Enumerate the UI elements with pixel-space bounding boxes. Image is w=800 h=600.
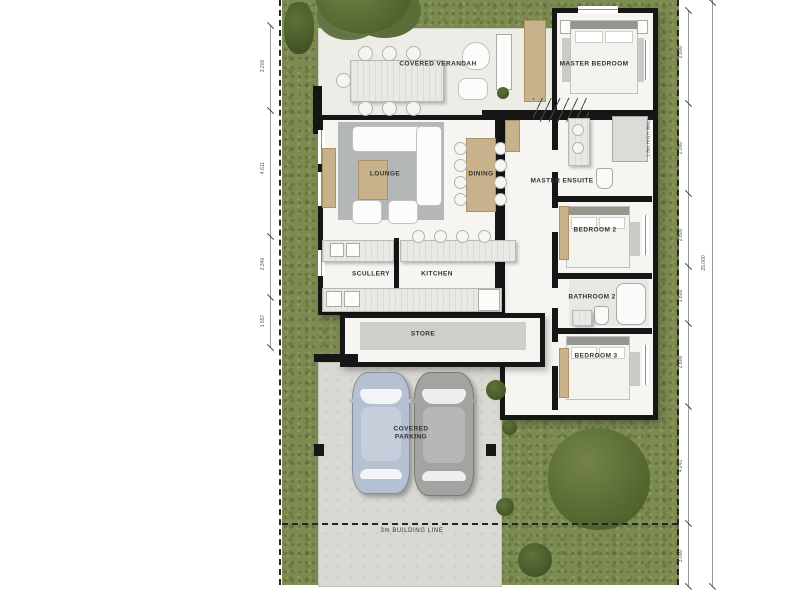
room-label-kitchen: KITCHEN xyxy=(421,271,453,278)
verandah-shelf xyxy=(496,34,512,90)
basin xyxy=(572,124,584,136)
car-windshield xyxy=(422,389,466,404)
dimension-label: 3.000 xyxy=(678,550,684,563)
dining-chair xyxy=(494,159,507,172)
outdoor-chair xyxy=(406,46,421,61)
room-label-bedroom-2: BEDROOM 2 xyxy=(574,227,617,234)
dining-chair xyxy=(494,193,507,206)
floor-plan-sheet: COVERED VERANDAH MASTER BEDROOM MASTER E… xyxy=(0,0,800,600)
bed-headboard xyxy=(567,337,629,345)
dimension-label: 3.200 xyxy=(260,60,266,73)
toilet xyxy=(596,168,613,189)
wardrobe xyxy=(559,206,569,260)
store-side-wall xyxy=(314,354,358,362)
bar-stool xyxy=(478,230,491,243)
room-label-covered-parking: COVERED PARKING xyxy=(387,426,435,443)
outdoor-chair xyxy=(382,101,397,116)
dining-chair xyxy=(454,142,467,155)
dimension-line-overall xyxy=(712,0,713,586)
bedroom2-bathroom2-wall xyxy=(558,273,652,279)
car-mirror xyxy=(472,399,477,403)
room-label-master-ensuite: MASTER ENSUITE xyxy=(530,178,593,185)
room-label-master-bedroom: MASTER BEDROOM xyxy=(560,61,629,68)
bedroom2-bed xyxy=(566,206,630,268)
hedge-icon xyxy=(284,2,314,54)
sink xyxy=(346,243,360,257)
lounge-chair xyxy=(458,78,488,100)
console-table xyxy=(322,148,336,208)
shrub-icon xyxy=(486,380,506,400)
car-rear-glass xyxy=(422,471,466,481)
bar-stool xyxy=(434,230,447,243)
dining-chair xyxy=(454,159,467,172)
outdoor-chair xyxy=(358,46,373,61)
dimension-label: 4.241 xyxy=(678,460,684,473)
bathtub xyxy=(616,283,646,325)
wardrobe xyxy=(559,348,569,398)
coffee-table xyxy=(358,160,388,200)
car-rear-glass xyxy=(360,469,402,479)
dimension-label: 1.800 xyxy=(678,290,684,303)
sink xyxy=(330,243,344,257)
kitchen-island xyxy=(400,240,516,262)
pillow xyxy=(605,31,633,43)
dining-chair xyxy=(454,176,467,189)
dimension-label: 1.557 xyxy=(260,315,266,328)
ottoman xyxy=(352,200,382,224)
pillow xyxy=(575,31,603,43)
store-floor xyxy=(360,322,526,350)
bathroom2-bedroom3-wall xyxy=(558,328,652,334)
master-bed xyxy=(570,20,638,94)
bed-headboard xyxy=(571,21,637,29)
car-mirror xyxy=(411,399,416,403)
appliance xyxy=(326,291,342,307)
shrub-icon xyxy=(496,498,514,516)
room-label-scullery: SCULLERY xyxy=(352,271,390,278)
side-table xyxy=(637,20,648,34)
dimension-label: 2.800 xyxy=(678,46,684,59)
parking-post xyxy=(314,444,324,456)
plant-icon xyxy=(497,87,509,99)
building-line xyxy=(282,523,678,525)
toilet xyxy=(594,306,609,325)
parking-post xyxy=(486,444,496,456)
dimension-label: 2.340 xyxy=(260,258,266,271)
ensuite-bedroom2-wall xyxy=(552,196,652,202)
bedroom3-bed xyxy=(566,336,630,400)
vanity xyxy=(572,310,592,326)
shrub-icon xyxy=(518,543,552,577)
dining-chair xyxy=(494,176,507,189)
verandah-wall xyxy=(313,86,322,134)
shower xyxy=(612,116,648,162)
side-table xyxy=(560,20,571,34)
sofa xyxy=(416,126,442,206)
dining-chair xyxy=(454,193,467,206)
bar-stool xyxy=(412,230,425,243)
bar-stool xyxy=(456,230,469,243)
outdoor-chair xyxy=(358,101,373,116)
boundary-wall-note: 1.8m HIGH WALL xyxy=(646,117,651,157)
room-label-store: STORE xyxy=(411,331,435,338)
linen-cupboard xyxy=(505,120,520,152)
dimension-label: 4.611 xyxy=(260,162,266,174)
room-label-bathroom-2: BATHROOM 2 xyxy=(568,294,615,301)
dimension-line-right xyxy=(688,10,689,586)
outdoor-chair xyxy=(382,46,397,61)
dimension-label-overall: 25.000 xyxy=(701,255,707,270)
hallway-wall-seg xyxy=(552,308,558,342)
appliance xyxy=(344,291,360,307)
room-label-lounge: LOUNGE xyxy=(370,171,400,178)
building-line-label: 3m BUILDING LINE xyxy=(381,528,444,534)
dimension-label: 2.800 xyxy=(678,229,684,242)
room-label-bedroom-3: BEDROOM 3 xyxy=(575,353,618,360)
fridge xyxy=(478,289,500,311)
boundary-line-left xyxy=(279,0,281,585)
ottoman xyxy=(388,200,418,224)
driveway-slab xyxy=(318,362,502,587)
shrub-icon xyxy=(502,420,517,435)
outdoor-chair xyxy=(336,73,351,88)
basin xyxy=(572,142,584,154)
outdoor-chair xyxy=(406,101,421,116)
room-label-covered-verandah: COVERED VERANDAH xyxy=(399,61,476,68)
hallway-wall-seg xyxy=(552,366,558,410)
bed-headboard xyxy=(567,207,629,215)
hallway-wall-seg xyxy=(552,232,558,288)
car-windshield xyxy=(360,389,402,404)
verandah-cabinet xyxy=(524,20,546,102)
dimension-label: 2.090 xyxy=(678,142,684,155)
window xyxy=(642,345,649,385)
room-label-dining: DINING xyxy=(468,171,493,178)
window xyxy=(578,6,618,13)
car-mirror xyxy=(349,399,354,403)
dimension-label: 2.800 xyxy=(678,356,684,369)
tree-icon xyxy=(548,428,650,530)
window xyxy=(642,215,649,255)
